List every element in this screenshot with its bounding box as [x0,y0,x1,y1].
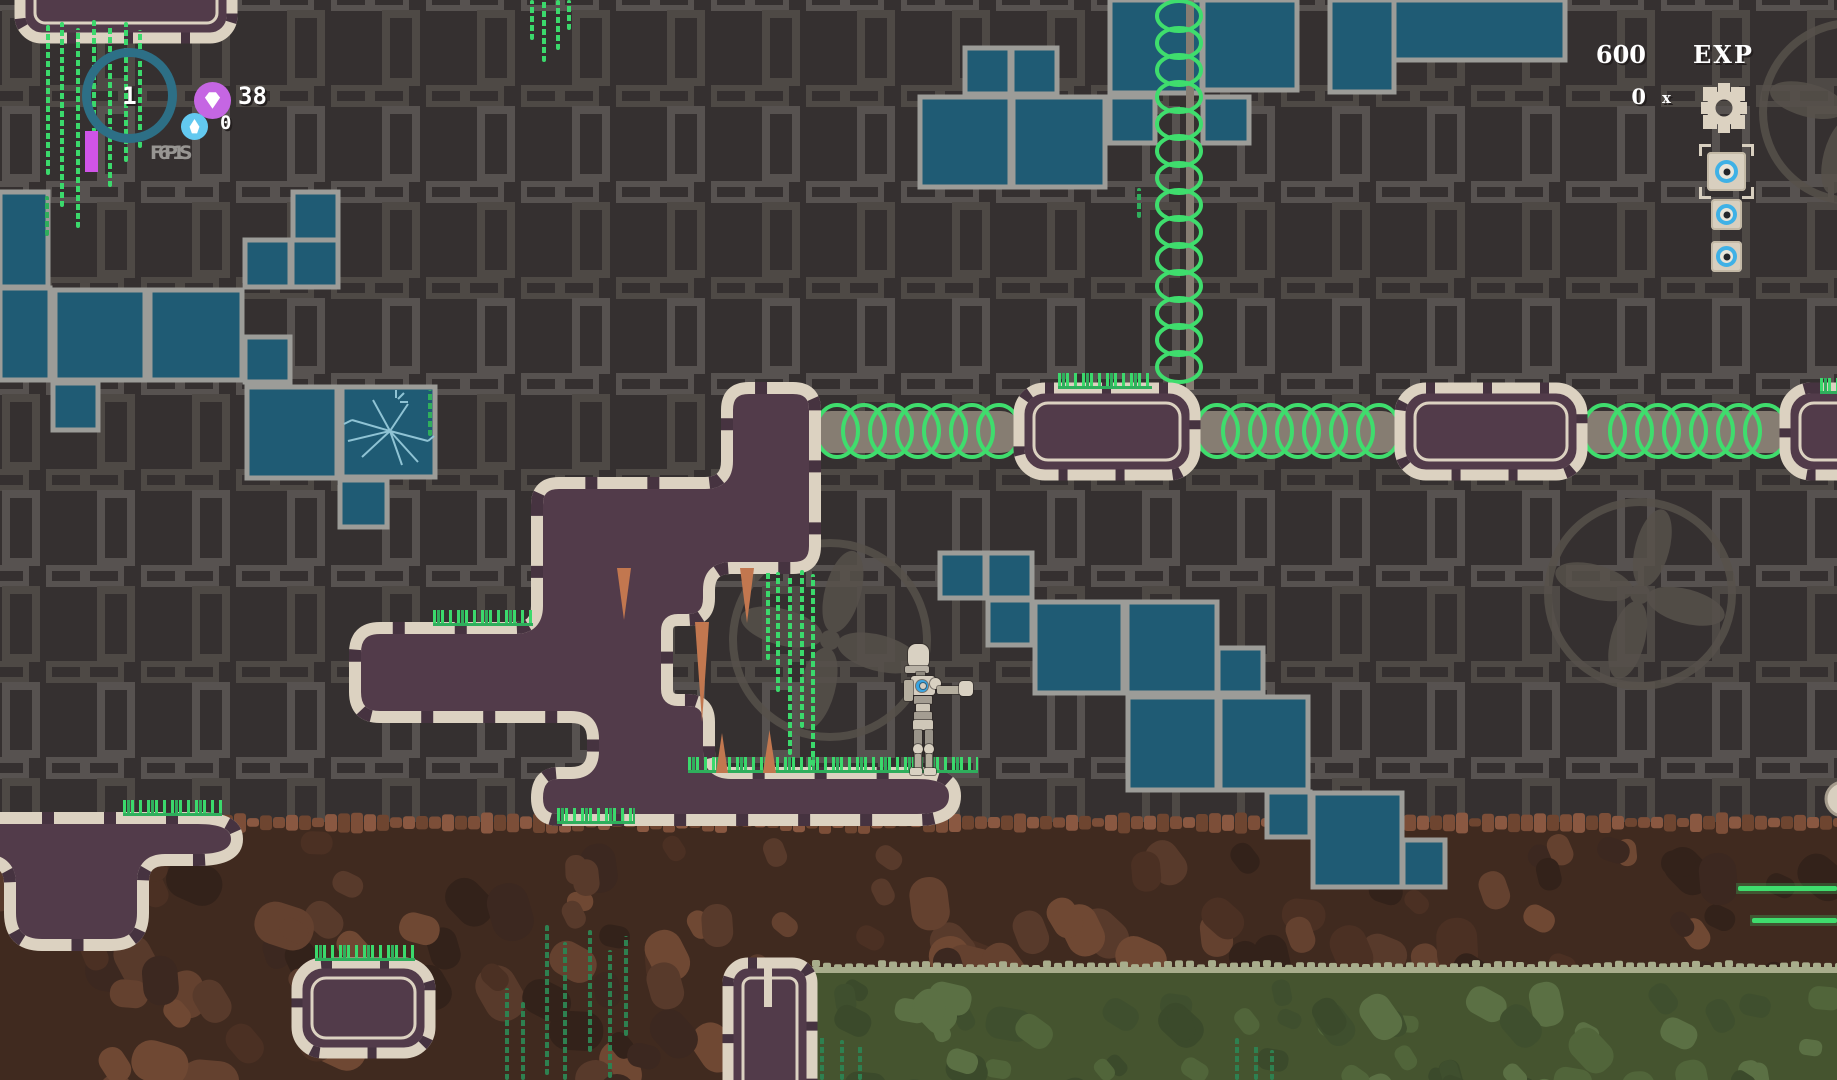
vine [45,196,49,236]
eye-gem-icon [1716,204,1737,225]
energy-bar [85,131,98,172]
game-viewport[interactable]: 1 38 0 FPS 61 600 EXP 0 x [0,0,1837,1080]
multiplier-value: 0 [1608,84,1646,109]
player-part [924,768,936,775]
exp-value: 600 [1576,40,1646,69]
eye-gem-icon [1716,246,1737,267]
grass-tuft [1058,373,1152,389]
vine [1254,1046,1258,1080]
shield-count: 38 [238,82,267,110]
stalactite-drip [740,568,754,623]
vine [588,930,592,1052]
vine [521,1002,525,1080]
vine [800,570,804,728]
fps-value: 61 [158,142,186,164]
item-slot-1-frame[interactable] [1699,144,1754,199]
vine [505,988,509,1080]
vine [811,574,815,766]
vine [567,0,571,30]
vine [542,0,546,62]
player-part [914,712,932,720]
grass-tuft [1820,378,1837,394]
vine [608,950,612,1078]
item-slot-3[interactable] [1711,241,1742,272]
player-part [924,744,934,754]
vine [556,0,560,50]
water-count: 0 [220,112,231,134]
player-part [913,744,923,754]
grass-tuft [315,945,415,961]
vine [766,572,770,660]
fps-counter: FPS 61 [150,142,158,164]
player-part [937,686,961,694]
player-part [904,680,913,701]
vine [46,25,50,175]
shield-glyph-icon [203,92,222,110]
world-overlay [0,0,1837,1080]
vine [530,0,534,40]
stalagmite-spike [763,730,776,773]
player-part [914,696,932,704]
player-part [959,681,973,696]
gear-icon [1701,83,1747,133]
water-drop-icon [181,113,208,140]
grass-tuft [123,800,222,816]
item-slot-1[interactable] [1707,152,1746,191]
vine [1235,1038,1239,1080]
player-part [913,720,933,730]
vine [428,390,432,436]
vine [545,925,549,1075]
vine [840,1040,844,1080]
vine [60,22,64,207]
vine [820,1035,824,1080]
vine [563,942,567,1080]
vine [788,575,792,755]
level-value: 1 [91,57,168,134]
eye-gem-icon [1715,160,1738,183]
player-part [916,704,930,712]
vine [858,1046,862,1080]
stalagmite-spike [716,733,728,773]
drop-glyph-icon [188,119,201,134]
player-character [903,640,973,780]
vine [624,936,628,1036]
level-ring: 1 [82,48,177,143]
grass-tuft [557,808,635,824]
vine [76,28,80,228]
item-slot-2[interactable] [1711,199,1742,230]
vine [776,572,780,692]
multiplier-times: x [1662,89,1671,107]
grass-tuft [433,610,533,626]
vine [1270,1050,1274,1080]
exp-label: EXP [1693,40,1754,69]
player-part [910,768,922,775]
vine [1137,188,1141,218]
stalactite-drip [617,568,631,620]
stalactite-drip [695,622,709,722]
player-part [920,683,926,689]
